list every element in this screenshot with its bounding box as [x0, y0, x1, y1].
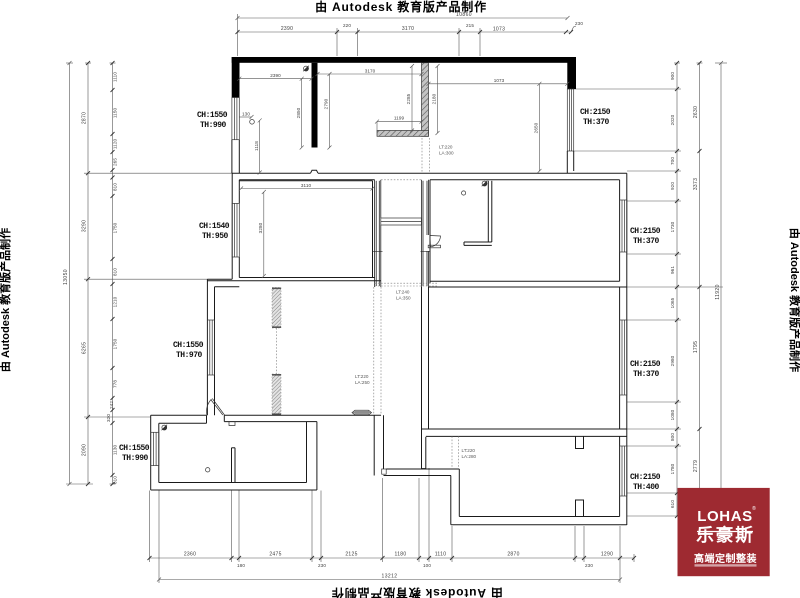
svg-text:1118: 1118	[254, 141, 259, 151]
svg-text:700: 700	[670, 157, 675, 165]
svg-text:1080: 1080	[670, 409, 675, 420]
svg-text:1730: 1730	[670, 221, 675, 232]
svg-text:2630: 2630	[693, 106, 699, 118]
svg-text:2285: 2285	[406, 93, 411, 104]
svg-text:®: ®	[752, 505, 756, 512]
svg-text:TH:990: TH:990	[122, 454, 149, 463]
svg-text:230: 230	[575, 21, 583, 26]
svg-text:130: 130	[242, 112, 250, 117]
svg-text:1073: 1073	[494, 78, 505, 83]
svg-text:3280: 3280	[258, 222, 263, 233]
svg-text:1110: 1110	[113, 72, 118, 82]
svg-text:2475: 2475	[269, 552, 281, 558]
svg-text:TH:950: TH:950	[202, 232, 229, 241]
svg-text:230: 230	[318, 563, 326, 568]
svg-text:1110: 1110	[435, 552, 447, 558]
svg-text:3290: 3290	[82, 220, 88, 232]
svg-text:3170: 3170	[402, 26, 414, 32]
svg-text:3373: 3373	[693, 178, 699, 190]
svg-text:2125: 2125	[345, 552, 357, 558]
svg-text:LT:220: LT:220	[439, 145, 453, 150]
svg-text:265: 265	[113, 158, 118, 166]
svg-text:LT:220: LT:220	[462, 448, 476, 453]
svg-text:242: 242	[109, 401, 114, 409]
svg-text:CH:1550: CH:1550	[197, 111, 228, 120]
svg-text:220: 220	[343, 23, 351, 28]
svg-text:1210: 1210	[113, 296, 118, 307]
svg-text:LOHAS: LOHAS	[697, 508, 753, 525]
svg-text:由 Autodesk 教育版产品制作: 由 Autodesk 教育版产品制作	[0, 228, 12, 372]
svg-text:CH:1550: CH:1550	[119, 444, 150, 453]
svg-text:TH:370: TH:370	[633, 370, 660, 379]
svg-text:由 Autodesk 教育版产品制作: 由 Autodesk 教育版产品制作	[788, 228, 800, 372]
svg-text:CH:2150: CH:2150	[630, 473, 661, 482]
svg-text:LA:280: LA:280	[462, 454, 477, 459]
svg-text:320: 320	[106, 414, 111, 422]
svg-text:1120: 1120	[113, 139, 118, 150]
svg-text:2020: 2020	[670, 114, 675, 125]
svg-text:LA:350: LA:350	[396, 296, 411, 301]
svg-text:1180: 1180	[395, 552, 407, 558]
svg-text:920: 920	[670, 182, 675, 190]
svg-text:高端定制整装: 高端定制整装	[694, 552, 757, 565]
svg-text:LA:300: LA:300	[439, 151, 454, 156]
svg-text:2390: 2390	[281, 26, 293, 32]
svg-text:810: 810	[113, 183, 118, 191]
svg-text:1750: 1750	[113, 338, 118, 349]
svg-text:2650: 2650	[534, 122, 539, 133]
svg-text:180: 180	[237, 563, 245, 568]
svg-text:TH:990: TH:990	[200, 121, 227, 130]
svg-text:由 Autodesk 教育版产品制作: 由 Autodesk 教育版产品制作	[331, 586, 503, 598]
svg-text:TH:370: TH:370	[583, 118, 610, 127]
svg-text:LT:240: LT:240	[396, 290, 410, 295]
svg-text:1199: 1199	[394, 116, 405, 121]
svg-text:2779: 2779	[693, 460, 699, 472]
svg-text:1150: 1150	[113, 108, 118, 119]
svg-text:2870: 2870	[82, 112, 88, 124]
svg-text:TH:970: TH:970	[176, 351, 203, 360]
svg-text:961: 961	[670, 266, 675, 274]
svg-text:900: 900	[670, 72, 675, 80]
svg-text:CH:1540: CH:1540	[199, 222, 230, 231]
svg-text:2360: 2360	[184, 552, 196, 558]
svg-text:LA:250: LA:250	[355, 380, 370, 385]
svg-text:13212: 13212	[382, 574, 398, 580]
svg-text:2180: 2180	[432, 93, 437, 104]
svg-text:1073: 1073	[493, 27, 505, 33]
svg-text:610: 610	[113, 476, 118, 484]
svg-text:TH:400: TH:400	[633, 483, 660, 492]
svg-text:1290: 1290	[601, 552, 613, 558]
svg-text:2850: 2850	[296, 107, 301, 118]
svg-text:13050: 13050	[63, 269, 69, 285]
svg-text:1750: 1750	[113, 222, 118, 233]
svg-text:100: 100	[423, 563, 431, 568]
svg-text:LT:220: LT:220	[355, 374, 369, 379]
svg-text:3110: 3110	[301, 183, 312, 188]
svg-text:2390: 2390	[270, 73, 281, 78]
svg-text:778: 778	[113, 380, 118, 388]
svg-text:10860: 10860	[456, 12, 472, 18]
svg-text:2790: 2790	[324, 98, 329, 109]
svg-text:TH:370: TH:370	[633, 237, 660, 246]
svg-text:230: 230	[585, 563, 593, 568]
svg-text:2980: 2980	[670, 355, 675, 366]
svg-text:1130: 1130	[113, 445, 118, 456]
svg-text:6265: 6265	[82, 342, 88, 354]
svg-text:CH:1550: CH:1550	[173, 341, 204, 350]
svg-text:1795: 1795	[693, 341, 699, 353]
svg-text:CH:2150: CH:2150	[630, 227, 661, 236]
svg-text:1780: 1780	[670, 463, 675, 474]
svg-text:1065: 1065	[670, 297, 675, 308]
svg-text:610: 610	[670, 500, 675, 508]
svg-text:810: 810	[113, 268, 118, 276]
svg-text:CH:2150: CH:2150	[580, 108, 611, 117]
svg-text:CH:2150: CH:2150	[630, 360, 661, 369]
svg-text:800: 800	[670, 433, 675, 441]
svg-text:乐豪斯: 乐豪斯	[696, 525, 755, 545]
svg-text:215: 215	[466, 23, 474, 28]
svg-text:3170: 3170	[365, 69, 376, 74]
svg-text:2870: 2870	[507, 552, 519, 558]
svg-text:2090: 2090	[82, 444, 88, 456]
svg-text:11920: 11920	[715, 284, 721, 300]
